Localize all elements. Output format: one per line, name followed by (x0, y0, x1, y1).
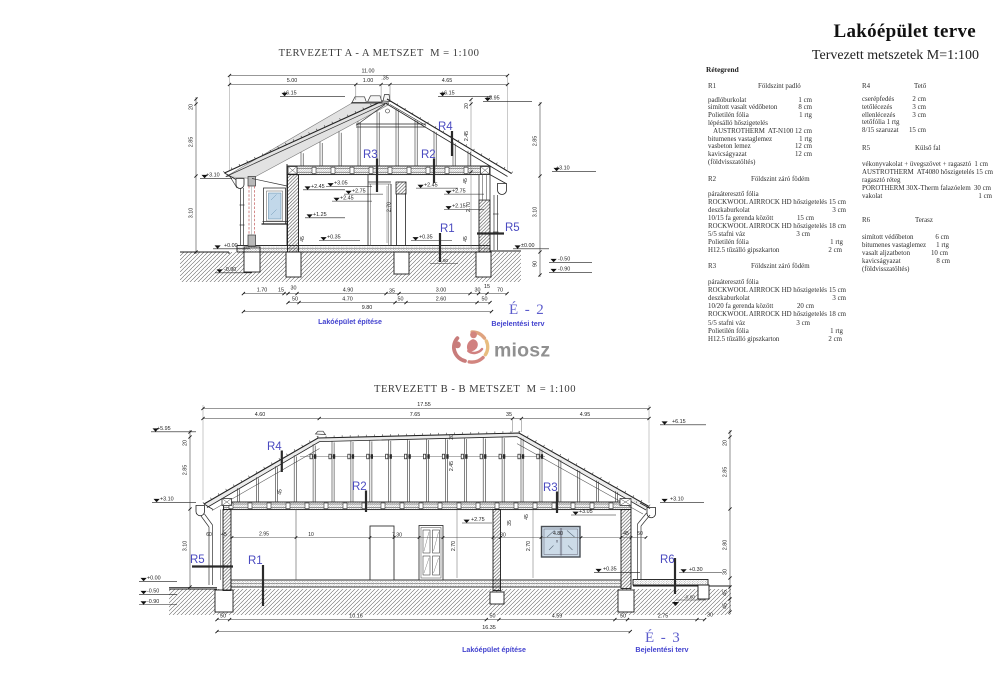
svg-text:1.00: 1.00 (363, 78, 374, 84)
svg-text:30: 30 (291, 286, 297, 292)
svg-text:3.00: 3.00 (436, 288, 447, 294)
svg-text:45: 45 (300, 236, 306, 242)
svg-text:45: 45 (278, 489, 284, 495)
svg-text:7.30: 7.30 (392, 533, 402, 539)
svg-text:2.70: 2.70 (451, 541, 457, 551)
svg-text:20: 20 (189, 104, 195, 110)
svg-text:R2: R2 (352, 481, 367, 493)
svg-text:+2.75: +2.75 (452, 188, 466, 194)
svg-text:9.80: 9.80 (362, 305, 373, 311)
svg-text:-0.60: -0.60 (684, 595, 695, 601)
svg-text:2.85: 2.85 (189, 137, 195, 148)
svg-text:3.10: 3.10 (533, 207, 539, 218)
svg-text:-0.60: -0.60 (437, 258, 448, 264)
svg-text:70: 70 (497, 288, 503, 294)
svg-text:90: 90 (533, 261, 539, 267)
svg-text:45: 45 (723, 590, 729, 596)
svg-text:-0.90: -0.90 (558, 267, 570, 273)
svg-text:50: 50 (637, 531, 643, 537)
svg-text:+6.15: +6.15 (672, 419, 686, 425)
svg-text:3.10: 3.10 (189, 208, 195, 219)
svg-text:-0.50: -0.50 (147, 589, 159, 595)
svg-text:+0.30: +0.30 (689, 567, 703, 573)
svg-text:+6.15: +6.15 (441, 91, 455, 97)
svg-text:+3.10: +3.10 (556, 166, 570, 172)
svg-text:R3: R3 (363, 149, 378, 161)
svg-text:+0.00: +0.00 (224, 243, 238, 249)
svg-text:+3.10: +3.10 (206, 173, 220, 179)
svg-text:50: 50 (398, 297, 404, 303)
svg-text:30: 30 (475, 288, 481, 294)
svg-text:R1: R1 (440, 223, 455, 235)
svg-text:+3.05: +3.05 (334, 181, 348, 187)
svg-text:35: 35 (506, 412, 512, 418)
svg-text:7.65: 7.65 (410, 412, 421, 418)
svg-text:60: 60 (206, 532, 212, 538)
svg-text:+5.95: +5.95 (157, 426, 171, 432)
svg-text:+0.00: +0.00 (147, 576, 161, 582)
svg-text:4.80: 4.80 (553, 531, 563, 537)
svg-text:2.85: 2.85 (183, 465, 189, 476)
svg-text:2.85: 2.85 (533, 136, 539, 147)
svg-text:+2.45: +2.45 (311, 184, 325, 190)
svg-text:+2.75: +2.75 (352, 188, 366, 194)
svg-text:20: 20 (723, 440, 729, 446)
svg-text:45: 45 (463, 178, 469, 184)
svg-text:45: 45 (723, 603, 729, 609)
svg-text:miosz: miosz (494, 340, 550, 362)
svg-text:+0.35: +0.35 (603, 567, 617, 573)
svg-text:+3.05: +3.05 (579, 509, 593, 515)
svg-text:20: 20 (449, 434, 455, 440)
svg-text:30: 30 (707, 613, 713, 619)
svg-text:20: 20 (464, 103, 470, 109)
svg-text:2.80: 2.80 (723, 540, 729, 551)
svg-text:35: 35 (389, 289, 395, 295)
svg-text:-0.90: -0.90 (147, 599, 159, 605)
svg-text:-0.90: -0.90 (224, 267, 236, 273)
svg-text:50: 50 (620, 614, 626, 620)
svg-text:4.59: 4.59 (552, 614, 563, 620)
svg-text:+2.45: +2.45 (340, 195, 354, 201)
svg-text:11.00: 11.00 (361, 69, 374, 75)
svg-text:30: 30 (500, 533, 506, 539)
svg-text:R6: R6 (660, 554, 675, 566)
svg-text:R4: R4 (267, 441, 282, 453)
svg-text:4.95: 4.95 (580, 412, 591, 418)
svg-text:2.70: 2.70 (526, 541, 532, 551)
svg-text:4.60: 4.60 (255, 412, 266, 418)
svg-text:2.95: 2.95 (259, 532, 269, 538)
svg-text:3.10: 3.10 (183, 541, 189, 552)
svg-text:+1.25: +1.25 (313, 212, 327, 218)
svg-text:+3.10: +3.10 (670, 497, 684, 503)
svg-text:2.75: 2.75 (658, 614, 669, 620)
svg-text:+2.75: +2.75 (471, 517, 485, 523)
svg-text:4.90: 4.90 (343, 288, 354, 294)
svg-text:30: 30 (723, 569, 729, 575)
svg-text:.35: .35 (381, 75, 389, 81)
svg-text:1.70: 1.70 (257, 288, 268, 294)
svg-text:+0.35: +0.35 (327, 235, 341, 241)
svg-text:15: 15 (278, 288, 284, 294)
svg-text:4.70: 4.70 (342, 297, 353, 303)
svg-text:45: 45 (524, 514, 530, 520)
svg-text:50: 50 (482, 297, 488, 303)
svg-text:4.65: 4.65 (442, 78, 453, 84)
svg-text:-0.50: -0.50 (558, 257, 570, 263)
svg-text:5.00: 5.00 (287, 78, 298, 84)
svg-text:±0.00: ±0.00 (521, 243, 534, 249)
svg-text:35: 35 (507, 520, 513, 526)
svg-text:45: 45 (221, 532, 227, 538)
svg-text:50: 50 (490, 614, 496, 620)
svg-text:45: 45 (463, 236, 469, 242)
svg-text:+0.35: +0.35 (419, 235, 433, 241)
svg-text:2.45: 2.45 (449, 461, 455, 471)
svg-text:+3.10: +3.10 (160, 497, 174, 503)
svg-text:+6.15: +6.15 (283, 91, 297, 97)
svg-text:2.60: 2.60 (436, 297, 447, 303)
svg-text:50: 50 (220, 614, 226, 620)
svg-text:R3: R3 (543, 482, 558, 494)
svg-text:+2.15: +2.15 (452, 204, 466, 210)
svg-text:10.16: 10.16 (349, 614, 363, 620)
svg-text:10: 10 (308, 532, 314, 538)
svg-text:2.45: 2.45 (464, 131, 470, 141)
svg-text:+5.95: +5.95 (486, 96, 500, 102)
svg-text:R1: R1 (248, 555, 263, 567)
svg-text:2.85: 2.85 (723, 467, 729, 478)
svg-text:20: 20 (183, 440, 189, 446)
svg-text:16.35: 16.35 (482, 625, 496, 631)
svg-text:50: 50 (292, 297, 298, 303)
svg-text:15: 15 (484, 284, 490, 290)
svg-text:+2.45: +2.45 (424, 182, 438, 188)
svg-text:45: 45 (623, 531, 629, 537)
svg-text:2.70: 2.70 (387, 202, 393, 212)
svg-text:17.55: 17.55 (417, 402, 431, 408)
svg-text:R5: R5 (505, 222, 520, 234)
svg-text:R5: R5 (190, 554, 205, 566)
